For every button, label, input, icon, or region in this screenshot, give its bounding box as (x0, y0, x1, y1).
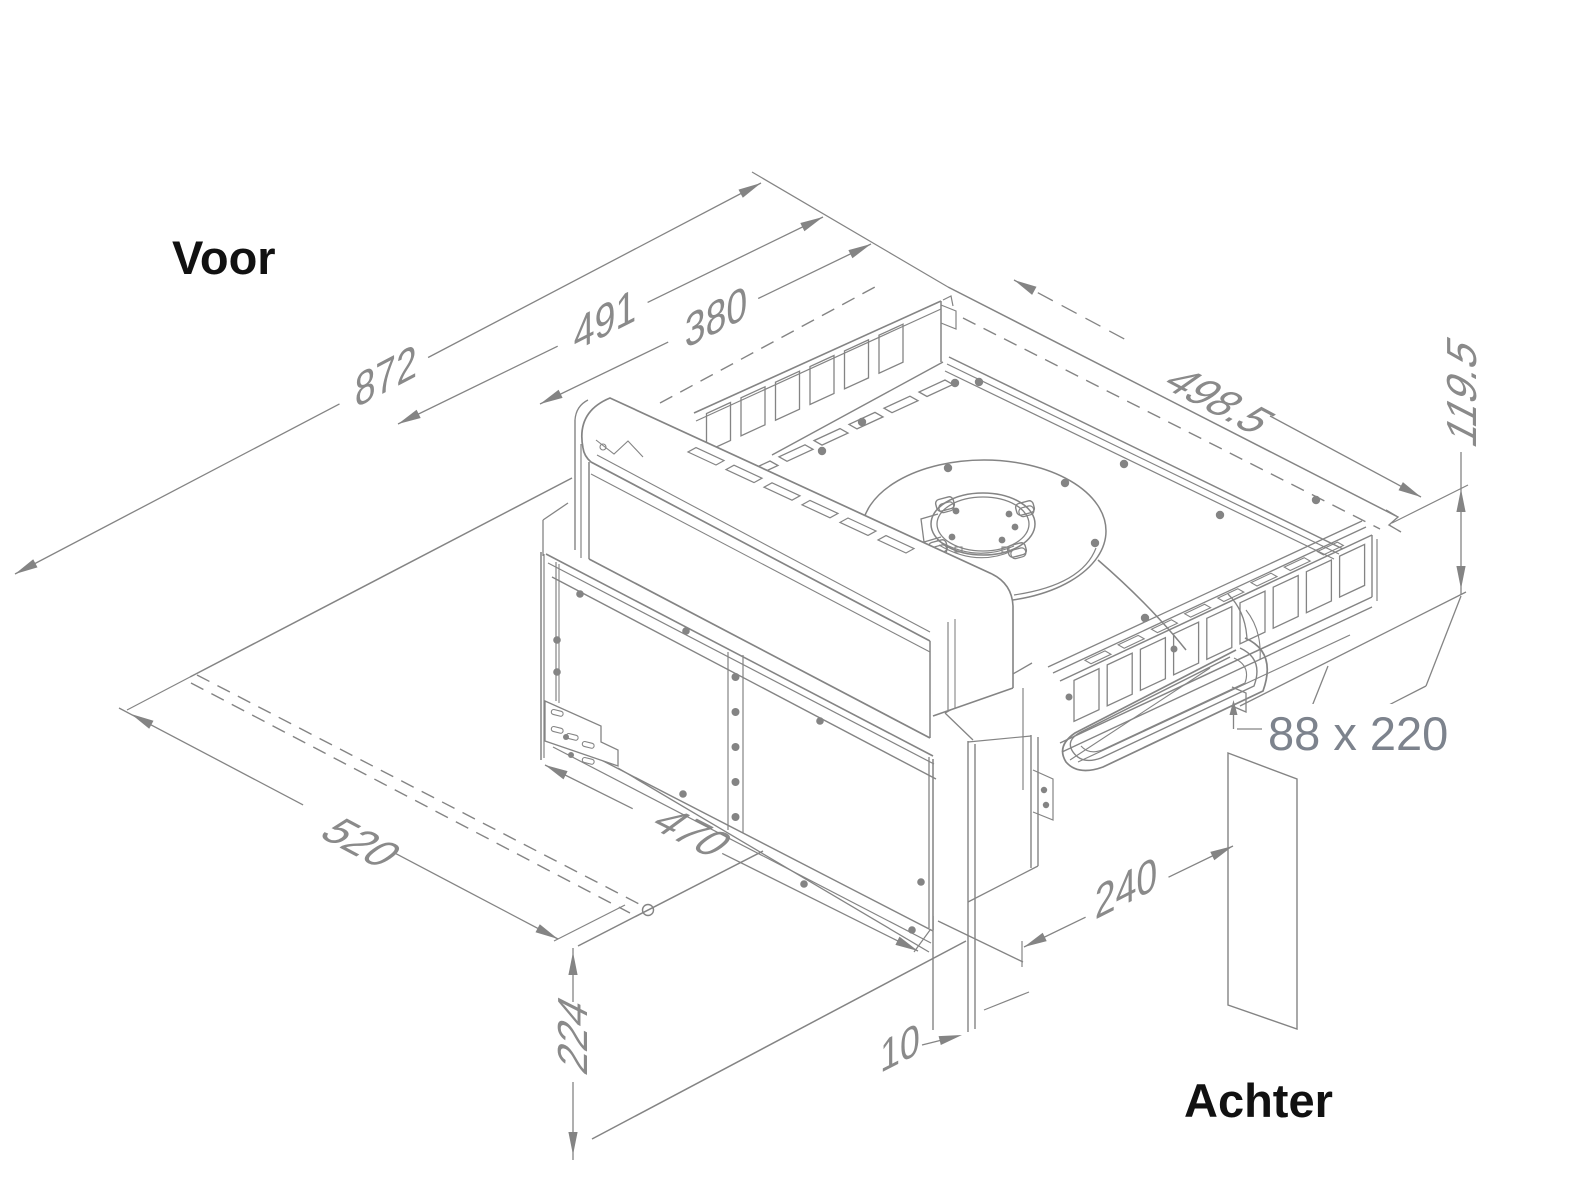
svg-text:Achter: Achter (1184, 1074, 1333, 1127)
svg-text:Voor: Voor (172, 231, 276, 284)
svg-text:88 x 220: 88 x 220 (1268, 707, 1448, 760)
